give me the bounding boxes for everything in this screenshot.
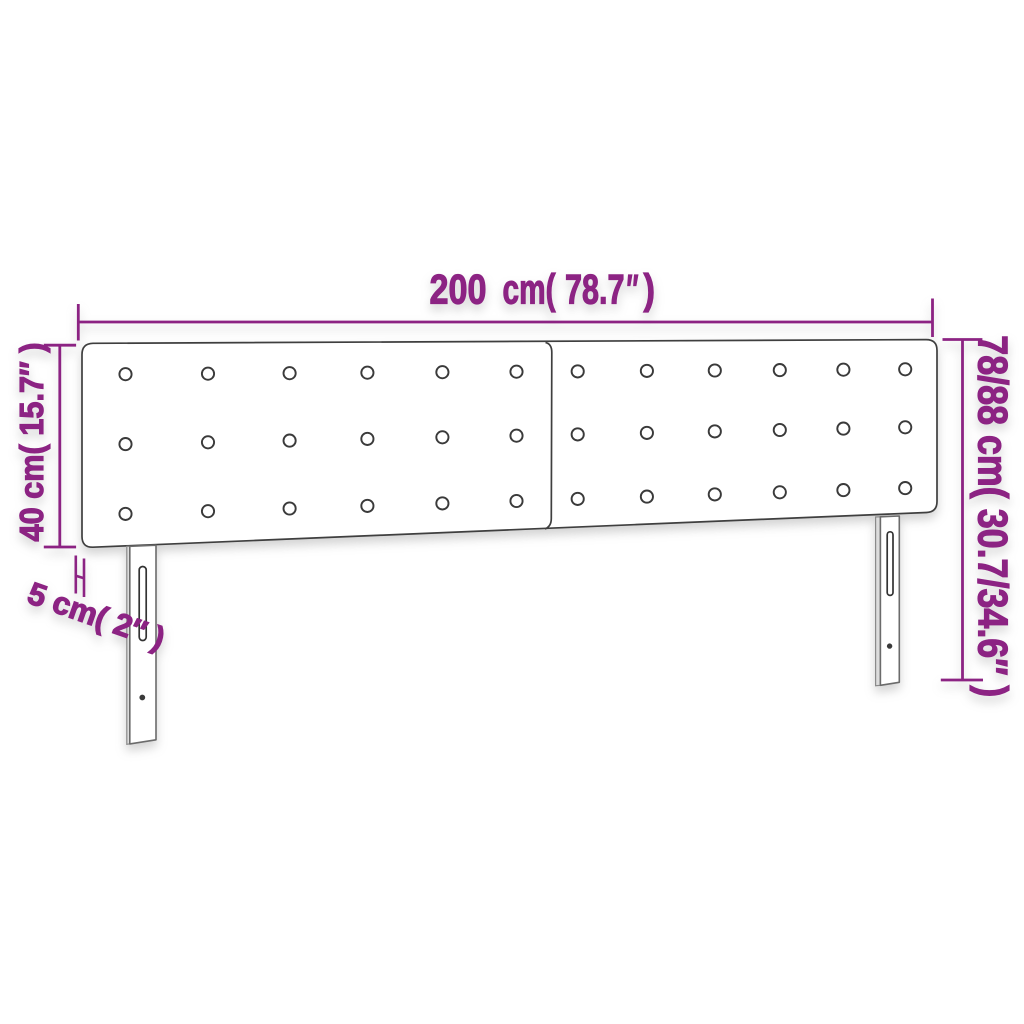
svg-text:78/88 cm( 30.7/34.6″ ): 78/88 cm( 30.7/34.6″ ) <box>969 335 1016 697</box>
svg-text:200: 200 <box>430 266 487 313</box>
svg-text:78.7: 78.7 <box>565 266 625 313</box>
svg-text:40 cm( 15.7″ ): 40 cm( 15.7″ ) <box>13 343 50 542</box>
svg-text:): ) <box>644 266 656 313</box>
svg-text:cm(: cm( <box>503 266 556 313</box>
svg-text:″: ″ <box>627 266 639 313</box>
